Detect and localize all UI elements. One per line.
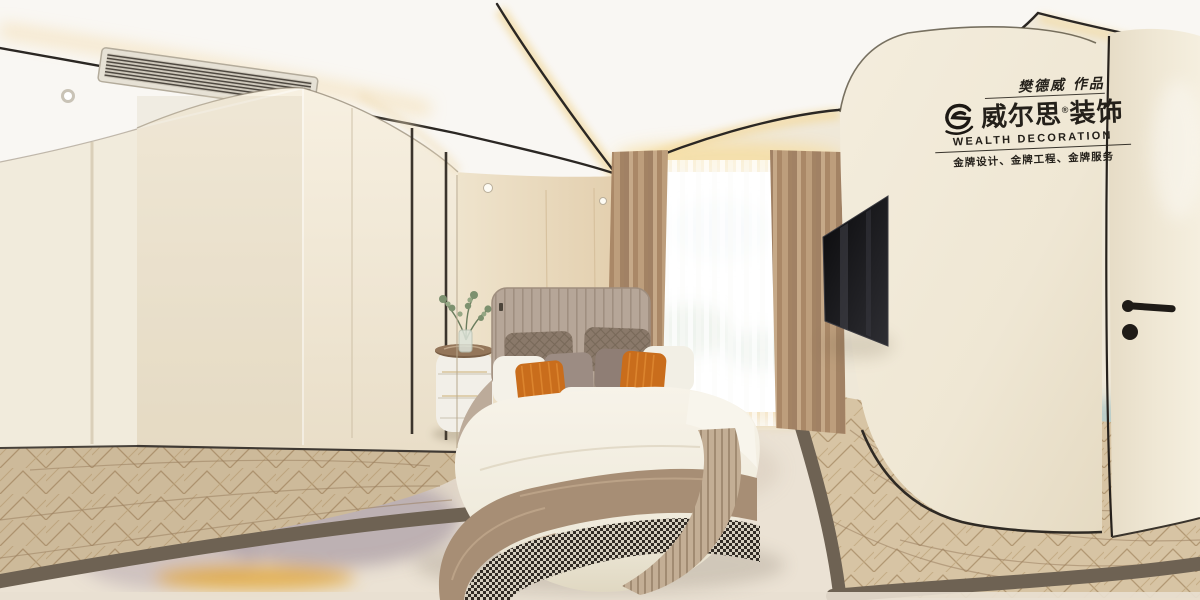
brand-name-cn: 威尔思®装饰 <box>980 98 1124 130</box>
panorama-bedroom-render: 樊德威 作品 威尔思®装饰 WEALTH DECORATION 金牌设计、金牌工… <box>0 0 1200 600</box>
headboard-metal-tag <box>499 303 503 311</box>
brand-watermark: 樊德威 作品 威尔思®装饰 WEALTH DECORATION 金牌设计、金牌工… <box>932 72 1132 171</box>
recessed-spotlight <box>61 89 75 103</box>
brand-logo-e-icon <box>939 100 978 136</box>
brand-cn-suffix: 装饰 <box>1069 96 1124 128</box>
plant-vase <box>459 330 472 352</box>
left-wall <box>0 129 137 448</box>
wardrobe <box>137 88 458 452</box>
wardrobe-left-face-shade <box>137 96 302 446</box>
rug-bottom-strip <box>0 592 1200 600</box>
brand-cn-main: 威尔思 <box>980 99 1062 133</box>
